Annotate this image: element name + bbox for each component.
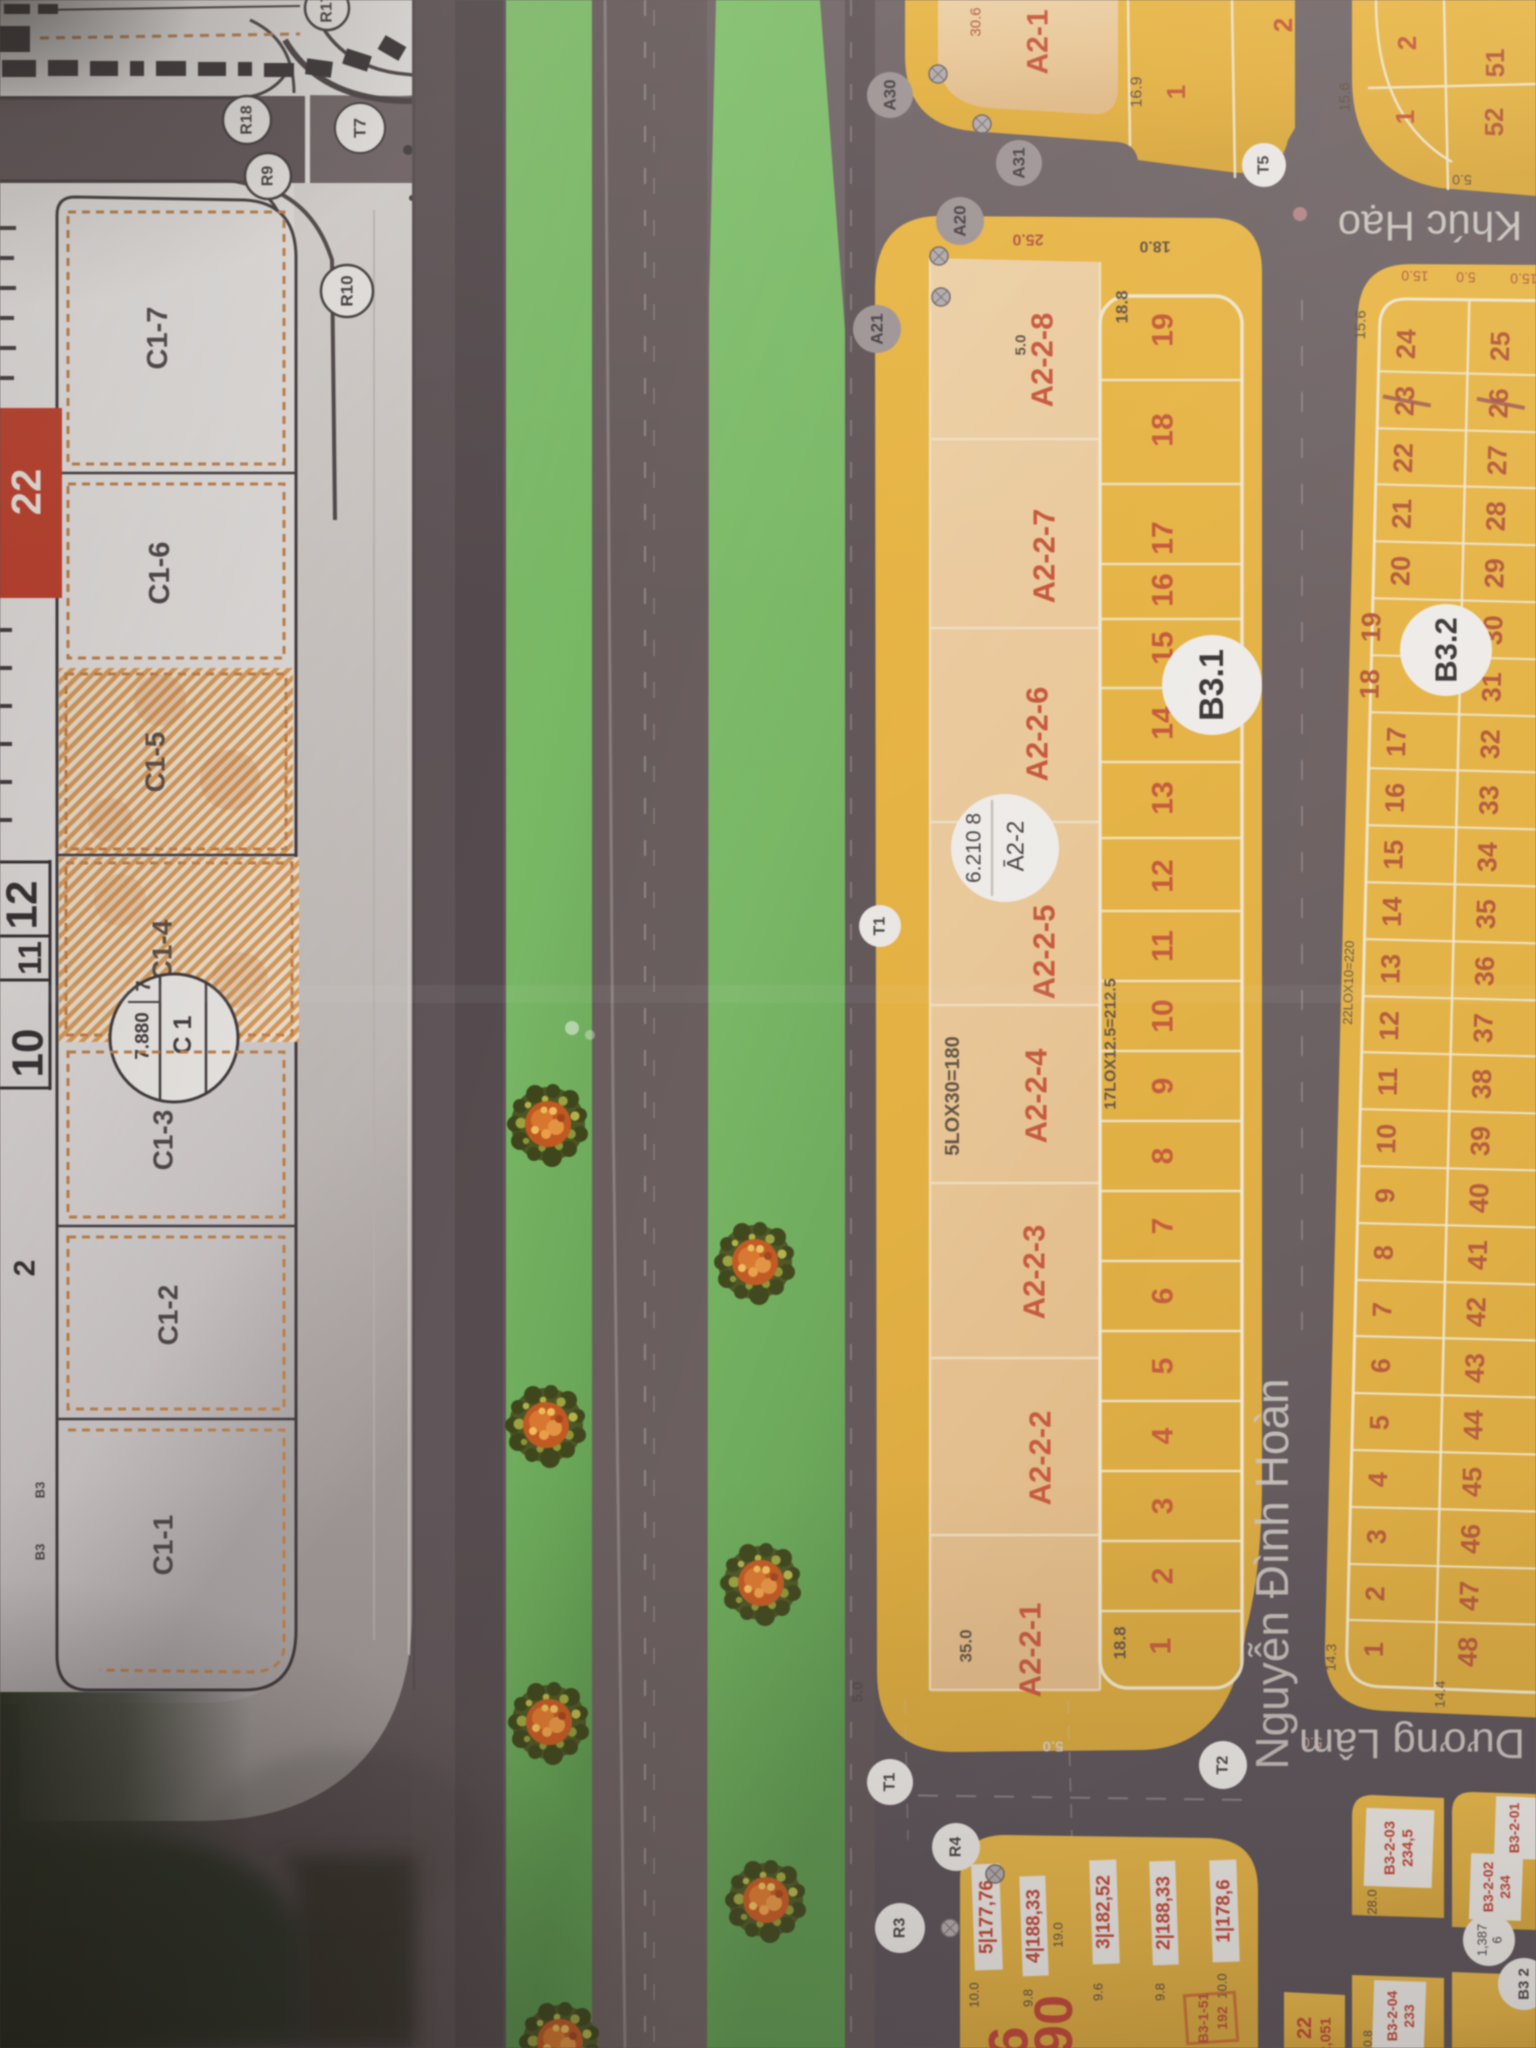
svg-text:T1: T1 [872,917,889,936]
svg-text:6: 6 [1147,1288,1180,1305]
svg-text:10: 10 [4,1029,53,1078]
svg-text:1: 1 [1390,110,1420,124]
svg-text:18: 18 [1354,669,1385,700]
svg-text:5: 5 [1147,1358,1180,1375]
svg-text:8: 8 [1147,1148,1180,1165]
svg-text:19: 19 [1147,313,1180,346]
svg-text:18.8: 18.8 [1113,290,1132,323]
svg-text:C1-2: C1-2 [153,1285,184,1346]
svg-text:48: 48 [1452,1636,1483,1667]
svg-text:T5: T5 [1256,156,1273,175]
svg-text:B3-1-51: B3-1-51 [1195,1993,1211,2044]
svg-text:12: 12 [1147,859,1180,892]
svg-text:52: 52 [1479,108,1509,137]
svg-text:6: 6 [1490,1936,1505,1943]
svg-text:Nguyễn Đình Hoàn: Nguyễn Đình Hoàn [1246,1378,1298,1769]
svg-text:A2-2-7: A2-2-7 [1027,509,1062,604]
svg-text:2: 2 [1392,36,1422,50]
svg-text:28.0: 28.0 [1365,1889,1380,1914]
svg-text:10: 10 [1147,999,1180,1032]
svg-text:4|188,33: 4|188,33 [1024,1889,1045,1963]
svg-text:A2-1: A2-1 [1022,9,1055,74]
svg-text:2: 2 [9,1260,42,1277]
svg-text:192: 192 [1214,2006,1230,2030]
svg-text:9: 9 [1370,1188,1400,1204]
svg-text:5|177,76: 5|177,76 [977,1880,998,1954]
svg-text:1|178,6: 1|178,6 [1214,1879,1235,1942]
svg-text:19.0: 19.0 [1051,1922,1066,1947]
svg-text:16: 16 [1380,782,1411,813]
svg-text:18: 18 [1147,413,1180,446]
svg-text:B3: B3 [33,1482,48,1499]
svg-text:19: 19 [1356,612,1387,643]
svg-text:8: 8 [1369,1245,1399,1261]
svg-text:C1-4: C1-4 [147,919,178,980]
svg-text:5.0: 5.0 [1456,269,1476,285]
svg-text:25.0: 25.0 [1012,231,1043,248]
svg-text:36: 36 [1469,956,1500,987]
svg-text:T2: T2 [1215,1756,1232,1775]
svg-text:5: 5 [1364,1415,1394,1431]
svg-text:40: 40 [1464,1183,1495,1214]
svg-text:4: 4 [1363,1472,1393,1488]
svg-text:A2-2-8: A2-2-8 [1025,313,1060,408]
svg-text:38: 38 [1467,1069,1498,1100]
svg-text:T1: T1 [882,1773,899,1792]
svg-text:5.0: 5.0 [1013,335,1030,356]
svg-text:47: 47 [1454,1581,1485,1612]
svg-text:33: 33 [1474,785,1505,816]
svg-text:B3-2-02: B3-2-02 [1480,1862,1496,1913]
svg-text:14: 14 [1377,896,1408,927]
svg-text:25: 25 [1485,331,1516,362]
svg-text:11: 11 [12,941,48,975]
svg-text:9: 9 [1147,1078,1180,1095]
svg-text:10.0: 10.0 [967,1982,982,2007]
svg-text:A20: A20 [951,205,970,236]
svg-text:1: 1 [1359,1642,1389,1658]
svg-text:6: 6 [1366,1358,1396,1374]
svg-text:41: 41 [1462,1240,1493,1271]
svg-text:B3-2-03: B3-2-03 [1382,1821,1399,1875]
svg-text:10: 10 [1371,1123,1402,1154]
svg-text:11: 11 [1147,930,1180,962]
svg-text:2: 2 [1360,1586,1390,1602]
svg-text:15.6: 15.6 [1352,310,1370,340]
svg-text:234: 234 [1497,1875,1513,1899]
svg-text:A2-2-6: A2-2-6 [1020,687,1055,782]
svg-text:1: 1 [1145,1638,1178,1655]
svg-text:22: 22 [1388,443,1419,474]
svg-text:11: 11 [1373,1067,1404,1096]
svg-text:12: 12 [1374,1010,1405,1041]
svg-text:A30: A30 [881,79,900,110]
svg-text:32: 32 [1475,729,1506,760]
svg-text:15.6: 15.6 [1337,82,1354,111]
svg-text:28: 28 [1481,501,1512,532]
svg-text:Khúc Hạo: Khúc Hạo [1338,203,1522,250]
svg-text:39: 39 [1465,1126,1496,1157]
svg-text:B3.1: B3.1 [1193,649,1231,721]
svg-text:Ā2-2: Ā2-2 [1003,821,1030,872]
svg-text:20: 20 [1385,556,1416,587]
svg-text:R3: R3 [892,1918,909,1939]
svg-text:10.8: 10.8 [1361,2030,1375,2048]
svg-text:233: 233 [1401,2004,1417,2028]
svg-text:15.0: 15.0 [1510,271,1536,288]
svg-text:18.0: 18.0 [1139,238,1170,255]
svg-text:22: 22 [1294,2017,1316,2039]
svg-text:24: 24 [1391,329,1422,360]
svg-text:1: 1 [1161,85,1191,99]
svg-text:Dương Lâm: Dương Lâm [1299,1721,1525,1768]
svg-text:17: 17 [1147,521,1180,554]
svg-text:12: 12 [0,881,47,930]
svg-text:R9: R9 [260,166,277,187]
svg-text:2: 2 [1268,18,1298,32]
svg-text:A2-2-3: A2-2-3 [1017,1225,1052,1320]
svg-text:C1-1: C1-1 [148,1515,179,1576]
svg-text:42: 42 [1461,1297,1492,1328]
svg-text:A31: A31 [1010,147,1029,178]
svg-text:9.8: 9.8 [1153,1983,1168,2001]
svg-text:16.9: 16.9 [1129,76,1146,107]
svg-text:37: 37 [1468,1013,1499,1044]
svg-text:17: 17 [1381,726,1412,757]
svg-text:51: 51 [1480,49,1510,78]
svg-text:30.6: 30.6 [968,7,985,36]
svg-text:A2-2-1: A2-2-1 [1013,1603,1048,1698]
svg-text:43: 43 [1460,1353,1491,1384]
svg-text:29: 29 [1479,558,1510,589]
svg-text:21: 21 [1387,499,1418,530]
svg-text:18.8: 18.8 [1111,1626,1130,1659]
svg-text:1,387: 1,387 [1475,1924,1490,1957]
svg-text:9.6: 9.6 [1091,1983,1106,2001]
svg-text:22: 22 [3,469,50,516]
svg-text:44: 44 [1458,1410,1489,1441]
svg-text:B3-2-04: B3-2-04 [1384,1991,1400,2042]
svg-text:2,051: 2,051 [1318,2017,1335,2048]
svg-text:A2-2-4: A2-2-4 [1019,1048,1054,1144]
svg-text:C1-6: C1-6 [144,542,176,605]
svg-text:3|182,52: 3|182,52 [1094,1875,1115,1949]
svg-text:15.0: 15.0 [1401,268,1429,285]
svg-text:R17: R17 [319,0,336,23]
svg-text:2|188,33: 2|188,33 [1154,1876,1175,1950]
svg-text:B3-2-01: B3-2-01 [1506,1803,1522,1854]
svg-text:B3.2: B3.2 [1429,617,1464,682]
svg-text:290: 290 [1024,1995,1084,2048]
svg-text:R4: R4 [948,1837,965,1858]
svg-text:C1-3: C1-3 [148,1110,179,1171]
svg-text:7: 7 [1367,1302,1397,1318]
svg-text:C1-7: C1-7 [142,307,174,370]
svg-text:13: 13 [1375,953,1406,984]
svg-text:6.210 8: 6.210 8 [963,813,986,883]
svg-text:27: 27 [1482,445,1513,476]
svg-text:46: 46 [1455,1524,1486,1555]
svg-text:34: 34 [1472,842,1503,873]
svg-text:35.0: 35.0 [957,1629,976,1662]
svg-text:C1-5: C1-5 [140,732,171,793]
svg-text:234,5: 234,5 [1400,1829,1417,1867]
svg-text:A2-2-2: A2-2-2 [1023,1411,1058,1506]
svg-text:R10: R10 [338,275,357,306]
svg-text:5.0: 5.0 [1043,1738,1064,1755]
svg-text:5.0: 5.0 [850,1682,867,1703]
svg-text:3: 3 [1362,1529,1392,1545]
svg-text:22LOX10=220: 22LOX10=220 [1340,940,1357,1025]
svg-text:5LOX30=180: 5LOX30=180 [942,1036,964,1156]
svg-text:3: 3 [1147,1498,1180,1515]
svg-text:14.4: 14.4 [1431,1680,1448,1708]
svg-text:35: 35 [1471,899,1502,930]
svg-text:16: 16 [1147,573,1180,606]
svg-text:B3: B3 [33,1544,48,1561]
svg-text:15: 15 [1378,839,1409,870]
svg-text:2: 2 [1147,1568,1180,1585]
svg-text:C 1: C 1 [169,1015,197,1054]
svg-text:4: 4 [1147,1427,1180,1444]
svg-text:A21: A21 [868,313,887,344]
svg-text:R18: R18 [239,105,256,134]
svg-text:45: 45 [1457,1467,1488,1498]
svg-text:13: 13 [1147,781,1180,814]
svg-text:7: 7 [1147,1218,1180,1235]
svg-text:14.3: 14.3 [1322,1643,1339,1671]
svg-text:T7: T7 [351,118,370,138]
svg-text:5.0: 5.0 [1452,172,1472,188]
svg-text:B3 2: B3 2 [1516,1968,1533,2000]
